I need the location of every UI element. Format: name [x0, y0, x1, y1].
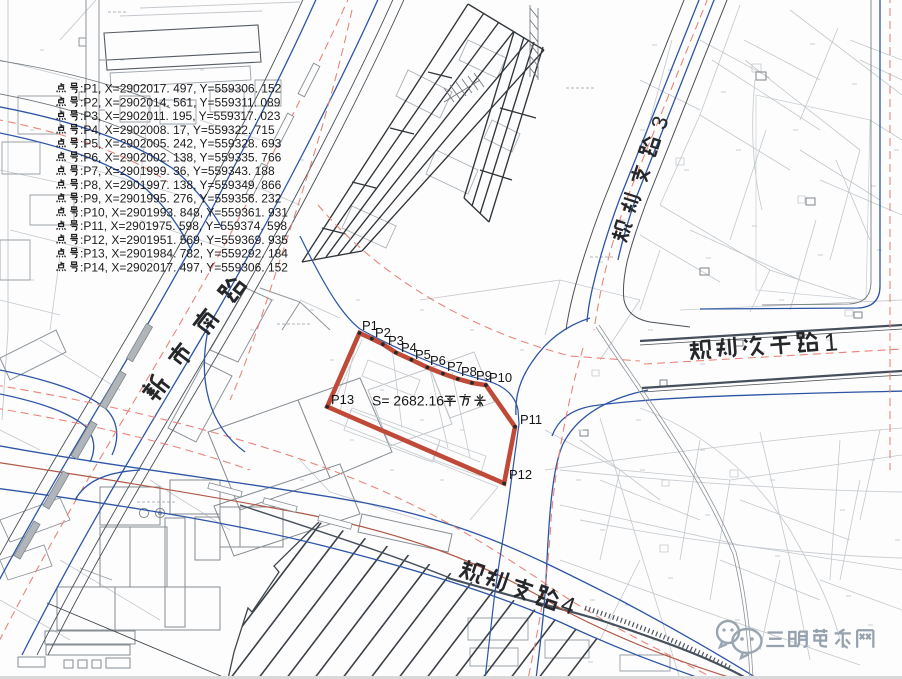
svg-text:P6: P6: [430, 353, 446, 368]
svg-text::P12, X=2901951. 569, Y=559369: :P12, X=2901951. 569, Y=559369. 935: [80, 233, 288, 247]
svg-text::P10, X=2901993. 848, Y=559361: :P10, X=2901993. 848, Y=559361. 931: [80, 205, 288, 219]
svg-text::P2, X=2902014. 561, Y=559311.: :P2, X=2902014. 561, Y=559311. 089: [80, 95, 281, 109]
svg-text:P13: P13: [331, 392, 354, 407]
svg-text::P5, X=2902005. 242, Y=559328.: :P5, X=2902005. 242, Y=559328. 693: [80, 137, 282, 151]
svg-text::P3, X=2902011. 195, Y=559317.: :P3, X=2902011. 195, Y=559317. 023: [80, 109, 281, 123]
svg-text::P1, X=2902017. 497, Y=559306.: :P1, X=2902017. 497, Y=559306. 152: [80, 82, 282, 96]
svg-text:P5: P5: [415, 347, 431, 362]
svg-text::P9, X=2901995. 276, Y=559356.: :P9, X=2901995. 276, Y=559356. 232: [80, 192, 282, 206]
svg-text::P13, X=2901984. 782, Y=559292: :P13, X=2901984. 782, Y=559292. 184: [80, 247, 288, 261]
svg-text:P8: P8: [461, 364, 477, 379]
svg-text:P11: P11: [520, 412, 542, 427]
svg-text::P8, X=2901997. 138, Y=559349.: :P8, X=2901997. 138, Y=559349. 866: [80, 178, 282, 192]
svg-text::P6, X=2902002. 138, Y=559335.: :P6, X=2902002. 138, Y=559335. 766: [80, 150, 282, 164]
svg-text:S= 2682.16: S= 2682.16: [372, 393, 444, 409]
svg-text:P12: P12: [509, 467, 532, 482]
svg-text:1: 1: [823, 328, 839, 357]
svg-text::P14, X=2902017. 497, Y=559306: :P14, X=2902017. 497, Y=559306. 152: [80, 260, 288, 274]
svg-text::P11, X=2901975. 598, Y=559374: :P11, X=2901975. 598, Y=559374. 598: [80, 219, 287, 233]
svg-text::P4, X=2902008. 17, Y=559322.: :P4, X=2902008. 17, Y=559322. 715: [80, 123, 275, 137]
svg-text:P10: P10: [489, 370, 512, 385]
svg-text::P7, X=2901999. 36, Y=559343.: :P7, X=2901999. 36, Y=559343. 188: [80, 164, 275, 178]
